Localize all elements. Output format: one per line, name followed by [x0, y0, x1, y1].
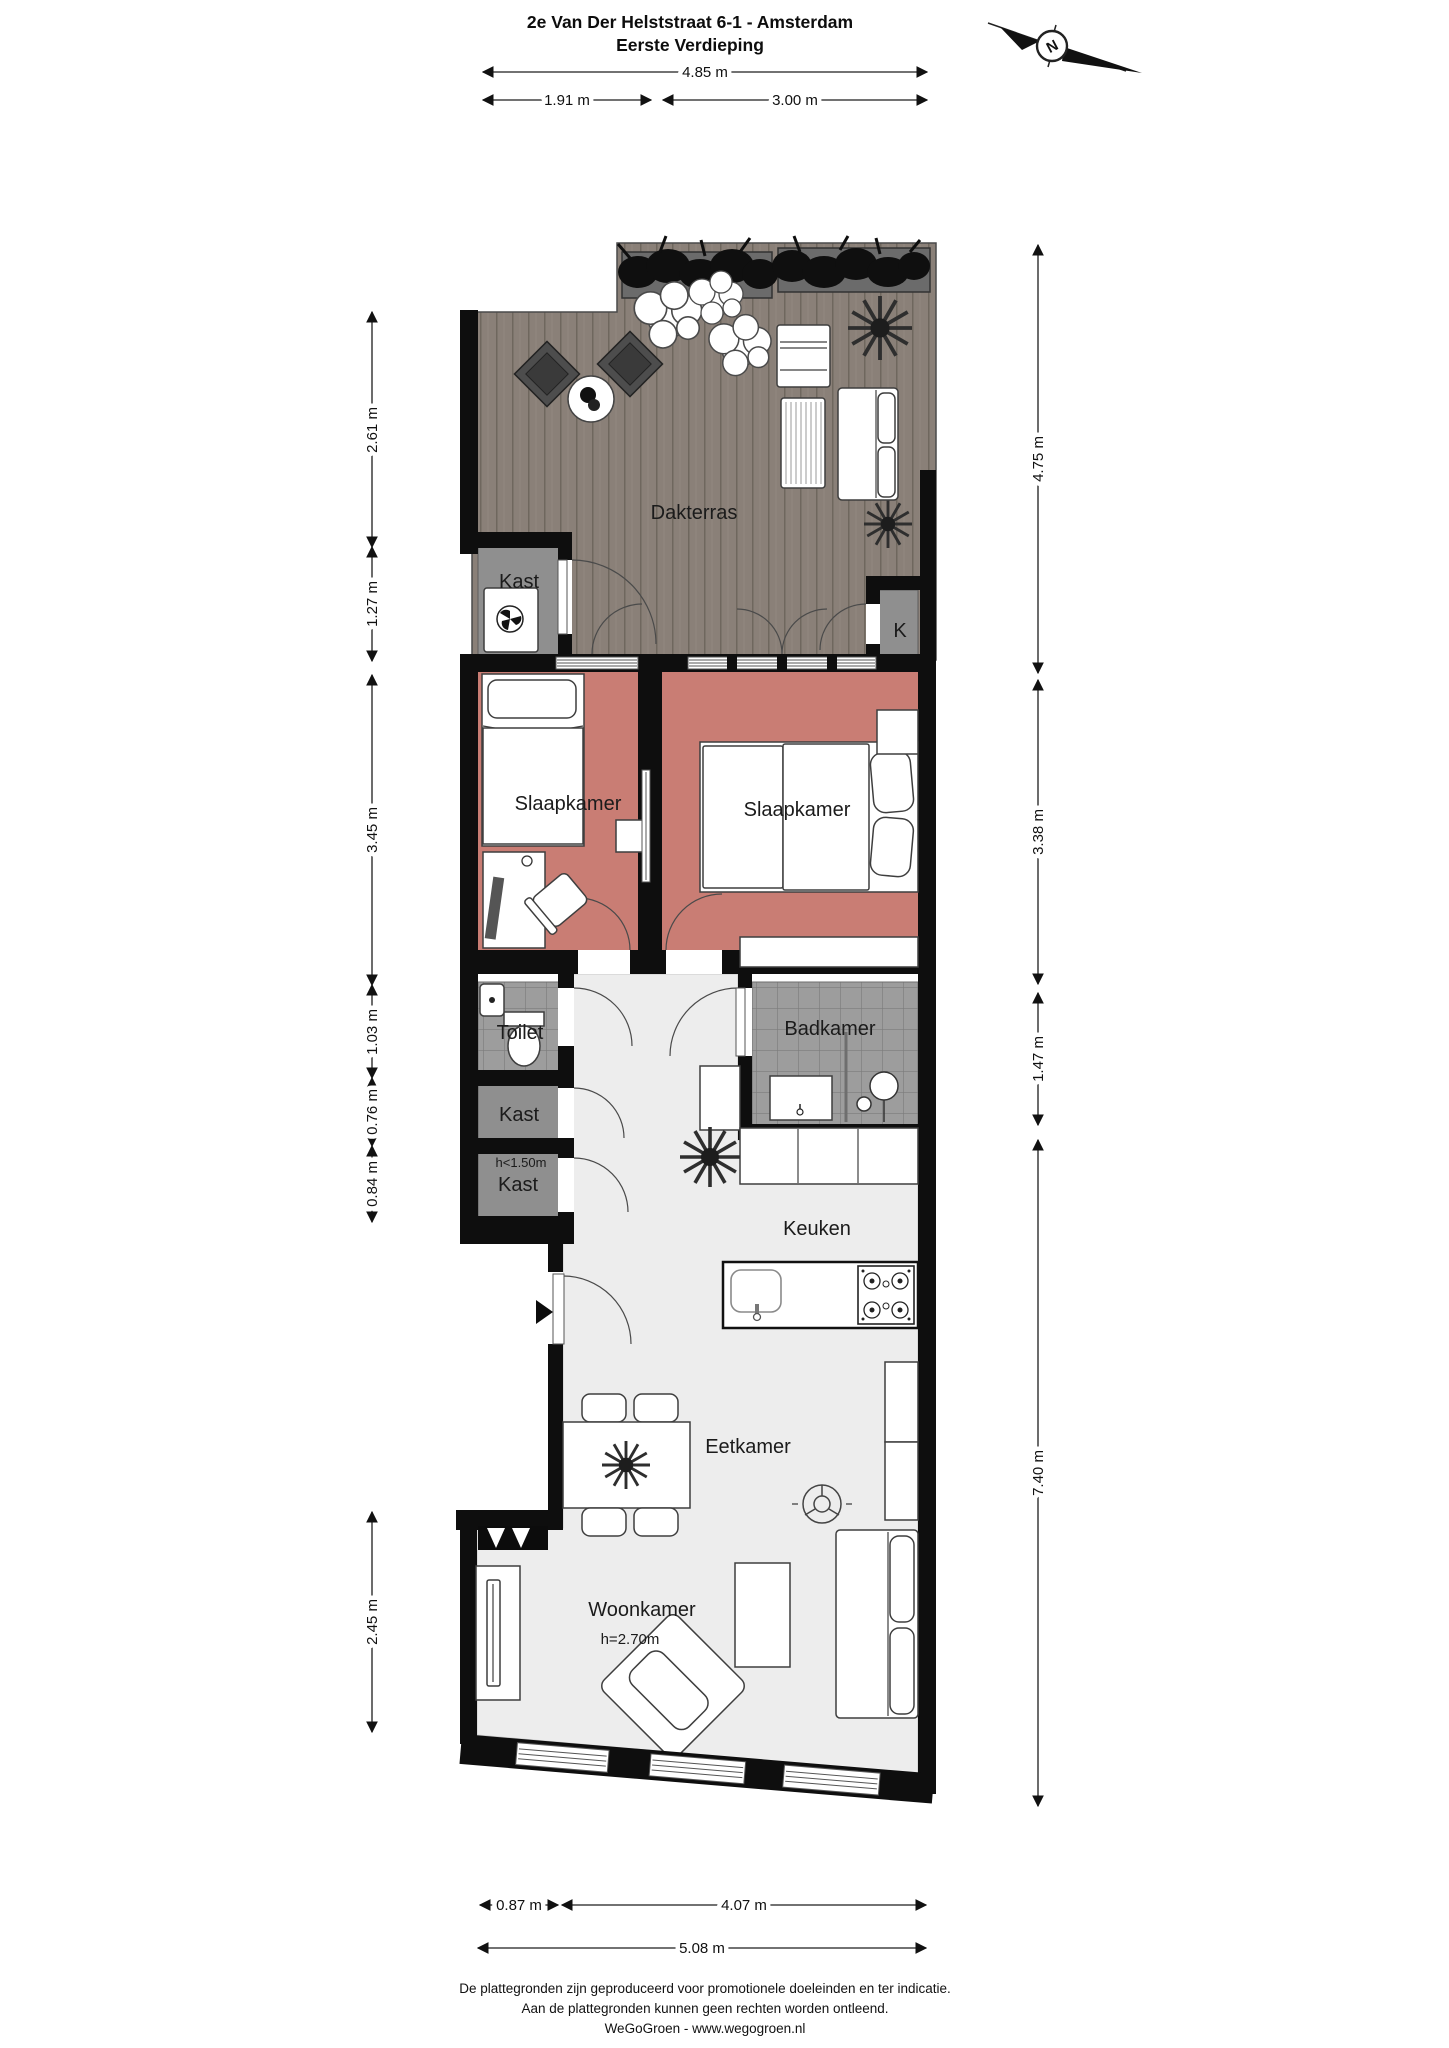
footer-line-2: Aan de plattegronden kunnen geen rechten… [521, 2001, 888, 2016]
svg-text:4.75 m: 4.75 m [1030, 436, 1047, 482]
tall-cabinet [700, 1066, 740, 1130]
dim-left-3: 3.45 m [364, 675, 381, 985]
dim-top-right: 3.00 m [663, 92, 927, 109]
svg-text:0.84 m: 0.84 m [364, 1161, 381, 1207]
dim-right-2: 3.38 m [1030, 680, 1047, 984]
dining-chair [582, 1508, 626, 1536]
tv [476, 1566, 520, 1700]
svg-text:0.76 m: 0.76 m [364, 1089, 381, 1135]
sofa [836, 1530, 918, 1718]
room-label-toilet: Toilet [497, 1022, 544, 1044]
dimensions-right: 4.75 m 3.38 m 1.47 m 7.40 m [1030, 245, 1047, 1806]
dim-left-2: 1.27 m [364, 547, 381, 661]
dining-chair [634, 1394, 678, 1422]
north-compass-icon: N [988, 23, 1142, 73]
footer-line-3: WeGoGroen - www.wegogroen.nl [605, 2021, 806, 2036]
wall-cabinet-top [885, 1362, 918, 1442]
dim-bottom-right: 4.07 m [562, 1897, 926, 1914]
room-label-kast-low-note: h<1.50m [496, 1155, 547, 1170]
svg-text:3.45 m: 3.45 m [364, 807, 381, 853]
svg-text:4.85 m: 4.85 m [682, 64, 728, 81]
dim-left-4: 1.03 m [364, 985, 381, 1078]
dim-left-6: 0.84 m [364, 1146, 381, 1222]
room-label-dakterras: Dakterras [651, 502, 738, 524]
svg-text:5.08 m: 5.08 m [679, 1940, 725, 1957]
dimensions-bottom: 0.87 m 4.07 m 5.08 m [478, 1897, 926, 1957]
bedroom-windows [556, 655, 876, 671]
svg-text:2.61 m: 2.61 m [364, 407, 381, 453]
room-label-woonkamer: Woonkamer [588, 1599, 696, 1621]
dining-chair [582, 1394, 626, 1422]
svg-text:1.91 m: 1.91 m [544, 92, 590, 109]
dim-left-5: 0.76 m [364, 1078, 381, 1146]
dim-top-total: 4.85 m [483, 64, 927, 81]
dim-left-1: 2.61 m [364, 312, 381, 547]
room-label-keuken: Keuken [783, 1218, 851, 1240]
dining-chair [634, 1508, 678, 1536]
svg-text:4.07 m: 4.07 m [721, 1897, 767, 1914]
page-title: 2e Van Der Helststraat 6-1 - Amsterdam [527, 12, 853, 32]
washing-machine [484, 588, 538, 652]
svg-text:7.40 m: 7.40 m [1030, 1450, 1047, 1496]
kitchen-island [723, 1262, 918, 1328]
footer: De plattegronden zijn geproduceerd voor … [459, 1981, 951, 2036]
svg-text:1.47 m: 1.47 m [1030, 1036, 1047, 1082]
footer-line-1: De plattegronden zijn geproduceerd voor … [459, 1981, 951, 1996]
kitchen-counter [740, 1128, 918, 1184]
dimensions-left: 2.61 m 1.27 m 3.45 m 1.03 m 0.76 m 0.84 … [364, 312, 381, 1732]
dining-furniture [563, 1394, 690, 1536]
coffee-table [735, 1563, 790, 1667]
terrace-table [568, 376, 614, 422]
room-label-k: K [893, 620, 907, 642]
floorplan-page: 2e Van Der Helststraat 6-1 - Amsterdam E… [0, 0, 1449, 2048]
room-label-kast-mid: Kast [499, 1104, 539, 1126]
svg-text:3.00 m: 3.00 m [772, 92, 818, 109]
terrace-sofa [838, 388, 898, 500]
svg-text:3.38 m: 3.38 m [1030, 809, 1047, 855]
dim-left-7: 2.45 m [364, 1512, 381, 1732]
terrace-lounger-2 [781, 398, 825, 488]
page-subtitle: Eerste Verdieping [616, 35, 764, 55]
svg-text:0.87 m: 0.87 m [496, 1897, 542, 1914]
floor-plan-canvas: 2e Van Der Helststraat 6-1 - Amsterdam E… [0, 0, 1449, 2048]
wardrobe [877, 710, 918, 754]
fireplace [478, 1526, 548, 1550]
room-label-kast-low: Kast [498, 1174, 538, 1196]
dim-bottom-total: 5.08 m [478, 1940, 926, 1957]
terrace-lounger-1 [777, 325, 830, 387]
room-label-badkamer: Badkamer [784, 1018, 875, 1040]
room-label-kast-top: Kast [499, 571, 539, 593]
room-label-eetkamer: Eetkamer [705, 1436, 791, 1458]
dimensions-top: 4.85 m 1.91 m 3.00 m [483, 64, 927, 109]
room-label-slaapkamer-left: Slaapkamer [515, 793, 622, 815]
room-label-woonkamer-height: h=2.70m [601, 1631, 660, 1648]
wall-cabinet-bottom [885, 1442, 918, 1520]
svg-text:1.03 m: 1.03 m [364, 1009, 381, 1055]
dim-top-left: 1.91 m [483, 92, 651, 109]
bench [740, 937, 918, 967]
room-label-slaapkamer-right: Slaapkamer [744, 799, 851, 821]
bathroom-sink [770, 1076, 832, 1120]
stove [858, 1266, 914, 1324]
dim-right-1: 4.75 m [1030, 245, 1047, 673]
dim-bottom-left: 0.87 m [480, 1897, 558, 1914]
dim-right-4: 7.40 m [1030, 1140, 1047, 1806]
sliding-door [642, 770, 650, 882]
svg-text:1.27 m: 1.27 m [364, 581, 381, 627]
dim-right-3: 1.47 m [1030, 993, 1047, 1125]
svg-text:2.45 m: 2.45 m [364, 1599, 381, 1645]
